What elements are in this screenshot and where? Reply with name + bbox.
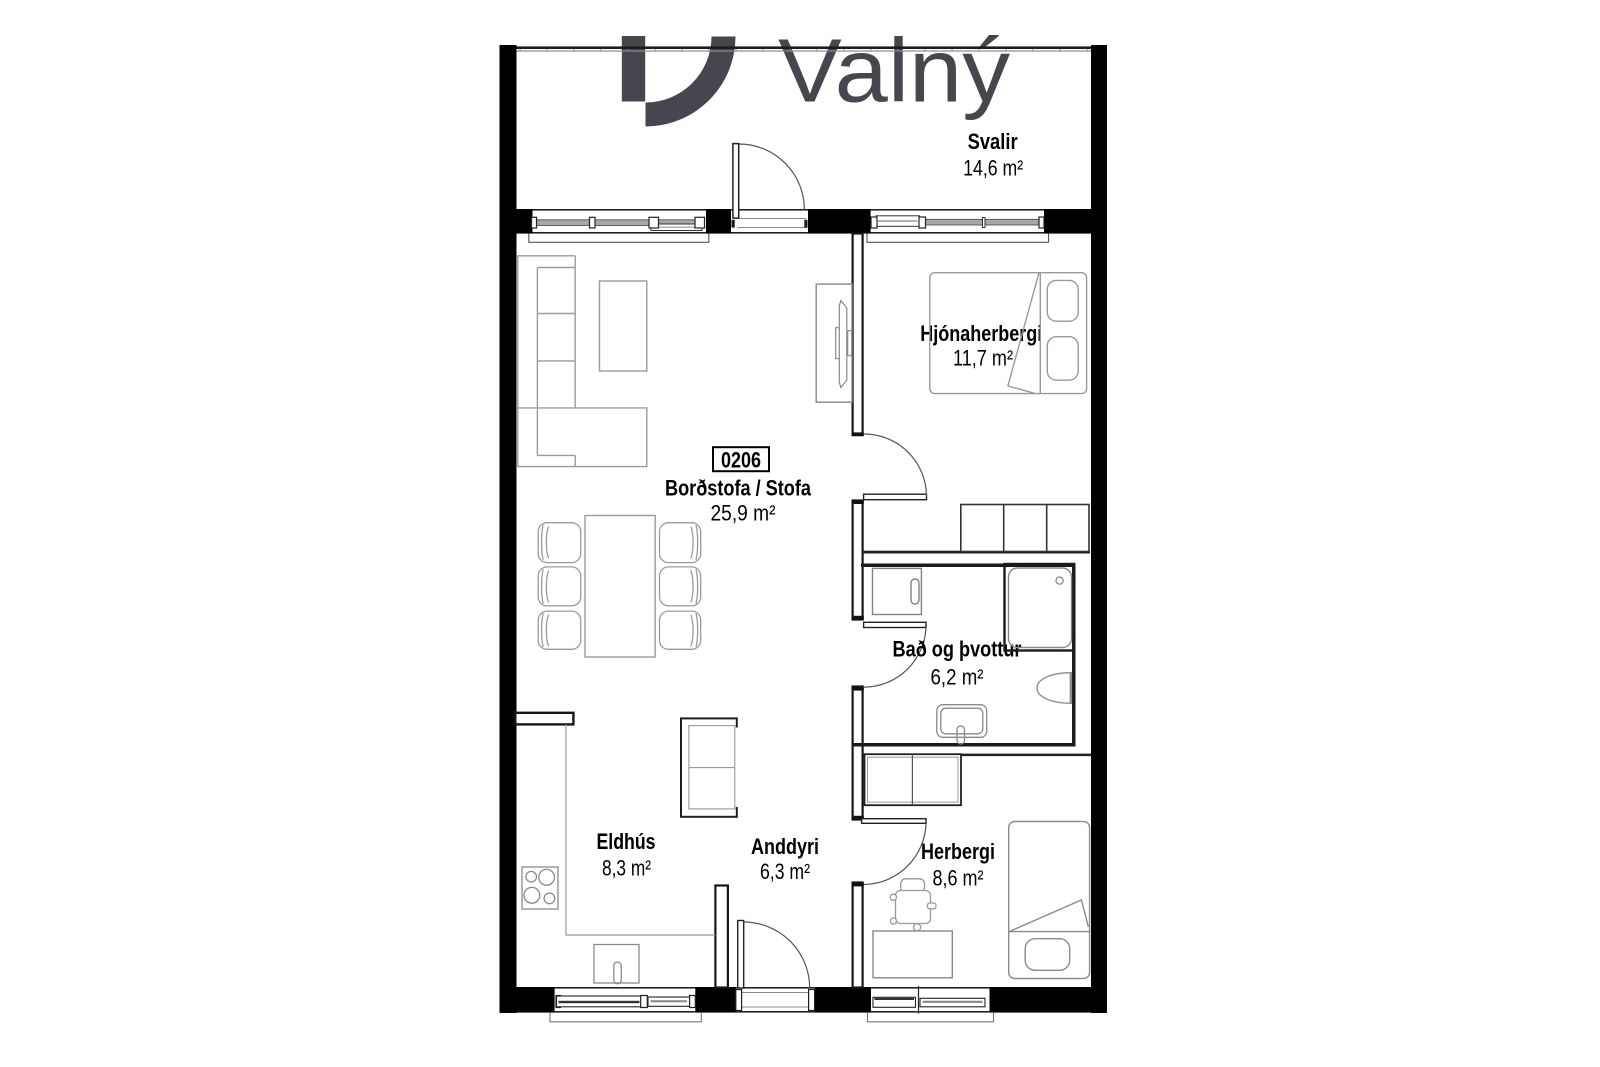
svg-text:Svalir: Svalir xyxy=(968,129,1018,154)
svg-text:14,6 m²: 14,6 m² xyxy=(963,156,1023,181)
svg-text:8,6 m²: 8,6 m² xyxy=(933,866,984,891)
svg-text:Borðstofa / Stofa: Borðstofa / Stofa xyxy=(665,476,812,501)
svg-text:Anddyri: Anddyri xyxy=(751,834,819,859)
svg-text:Herbergi: Herbergi xyxy=(921,839,995,864)
svg-text:11,7 m²: 11,7 m² xyxy=(953,346,1013,371)
svg-text:6,2 m²: 6,2 m² xyxy=(931,665,984,690)
svg-text:8,3 m²: 8,3 m² xyxy=(602,855,651,880)
svg-text:25,9 m²: 25,9 m² xyxy=(711,501,776,526)
svg-text:Bað og þvottur: Bað og þvottur xyxy=(893,637,1022,662)
svg-text:6,3 m²: 6,3 m² xyxy=(760,859,810,884)
svg-text:0206: 0206 xyxy=(721,448,761,473)
svg-text:Hjónaherbergi: Hjónaherbergi xyxy=(920,321,1042,346)
svg-text:Eldhús: Eldhús xyxy=(597,829,656,854)
svg-text:Valný: Valný xyxy=(778,22,1010,122)
